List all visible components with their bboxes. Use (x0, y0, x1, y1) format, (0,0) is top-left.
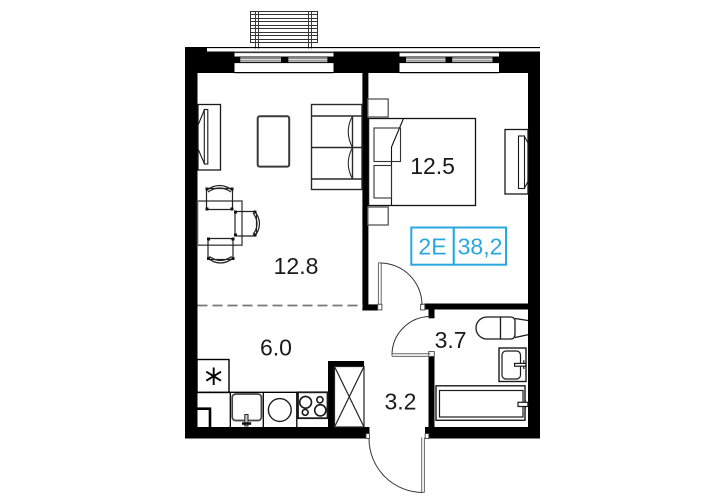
svg-text:38,2: 38,2 (458, 234, 503, 260)
svg-text:3.2: 3.2 (385, 389, 417, 415)
svg-text:6.0: 6.0 (260, 335, 292, 361)
svg-text:12.8: 12.8 (274, 253, 319, 279)
svg-text:3.7: 3.7 (435, 327, 467, 353)
svg-text:2E: 2E (418, 234, 446, 260)
svg-text:12.5: 12.5 (410, 153, 455, 179)
